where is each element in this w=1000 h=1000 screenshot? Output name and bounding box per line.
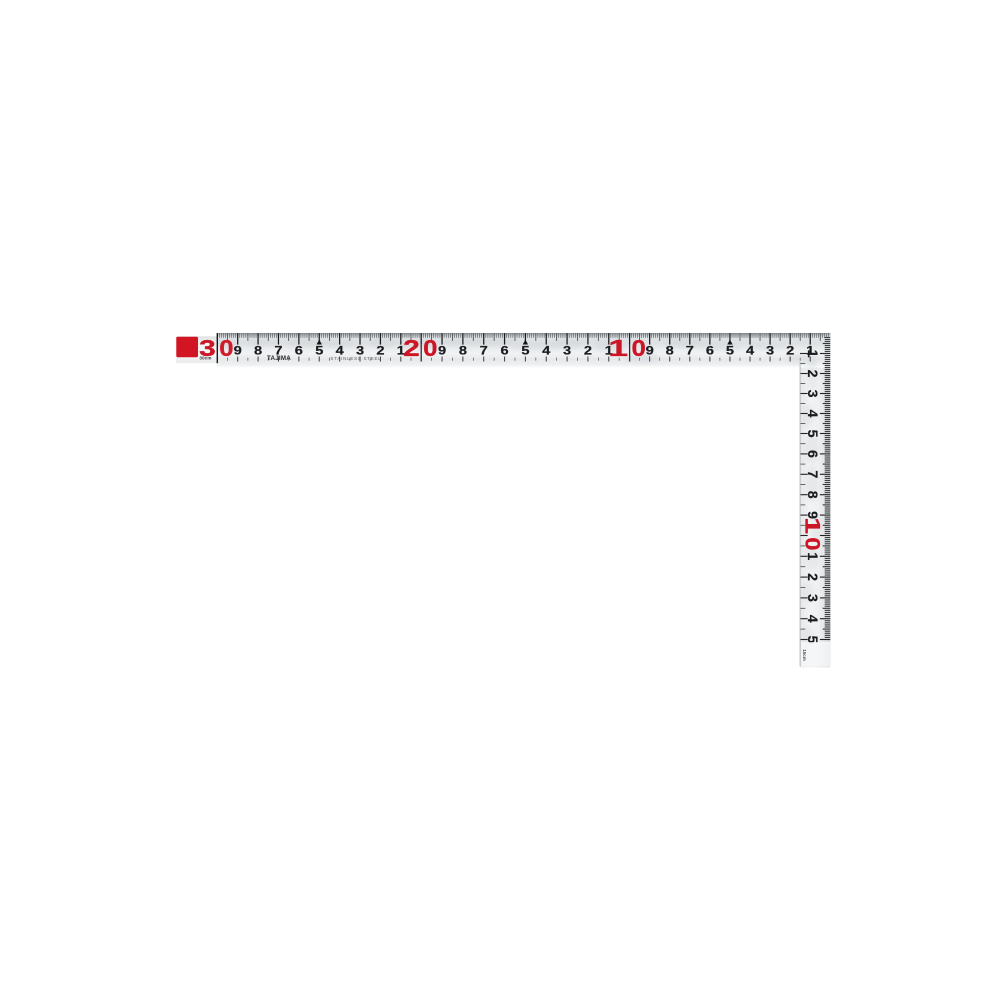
svg-text:0: 0 — [632, 336, 646, 361]
svg-text:4: 4 — [746, 344, 755, 357]
svg-text:9: 9 — [234, 344, 242, 357]
svg-text:8: 8 — [666, 344, 674, 357]
svg-text:1: 1 — [801, 517, 825, 534]
svg-text:8: 8 — [805, 491, 821, 499]
svg-text:0: 0 — [801, 537, 825, 550]
svg-text:2: 2 — [805, 573, 821, 581]
svg-text:1: 1 — [805, 552, 821, 560]
svg-text:6: 6 — [706, 344, 714, 357]
svg-text:30cm: 30cm — [199, 356, 211, 361]
svg-text:0: 0 — [423, 336, 437, 361]
svg-text:5: 5 — [315, 344, 324, 357]
svg-text:9: 9 — [646, 344, 654, 357]
svg-text:7: 7 — [480, 344, 488, 357]
svg-text:2: 2 — [786, 344, 794, 357]
svg-text:4: 4 — [542, 344, 551, 357]
svg-text:2: 2 — [584, 344, 592, 357]
svg-text:3: 3 — [563, 344, 571, 357]
svg-text:7: 7 — [805, 470, 821, 478]
svg-text:1: 1 — [608, 336, 628, 361]
svg-text:2: 2 — [403, 336, 420, 362]
svg-text:15cm: 15cm — [802, 649, 807, 661]
svg-text:6: 6 — [295, 344, 303, 357]
svg-text:3: 3 — [766, 344, 774, 357]
svg-text:3: 3 — [805, 594, 821, 602]
svg-text:4: 4 — [805, 615, 821, 623]
svg-text:7: 7 — [686, 344, 694, 357]
svg-text:8: 8 — [254, 344, 262, 357]
svg-text:8: 8 — [459, 344, 467, 357]
svg-text:6: 6 — [805, 450, 821, 458]
svg-text:0: 0 — [219, 336, 233, 361]
svg-text:3: 3 — [805, 390, 821, 398]
svg-text:9: 9 — [438, 344, 446, 357]
svg-text:STAINLESS STEEL: STAINLESS STEEL — [331, 356, 382, 361]
svg-text:5: 5 — [805, 430, 821, 438]
svg-text:4: 4 — [805, 410, 821, 418]
svg-text:5: 5 — [521, 344, 530, 357]
svg-text:5: 5 — [726, 344, 735, 357]
svg-text:2: 2 — [805, 370, 821, 378]
svg-text:6: 6 — [500, 344, 508, 357]
svg-text:TAJIMA: TAJIMA — [267, 355, 291, 362]
svg-text:1: 1 — [805, 350, 821, 358]
